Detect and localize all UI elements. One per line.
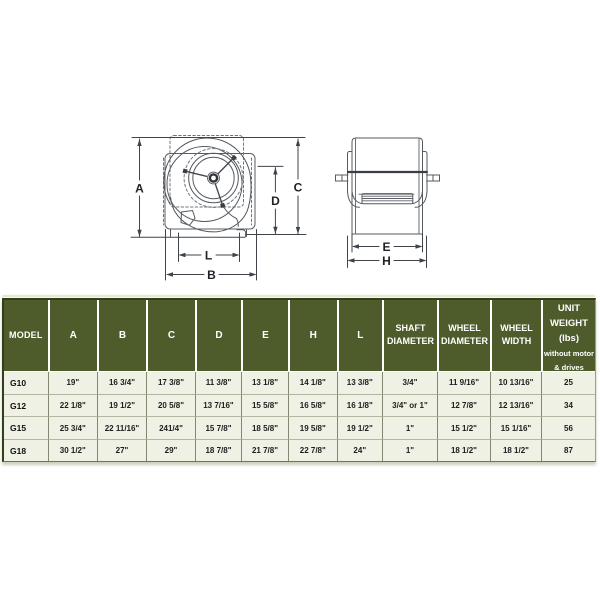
svg-text:A: A — [135, 182, 144, 196]
svg-text:C: C — [294, 181, 303, 195]
svg-text:E: E — [382, 240, 390, 254]
svg-text:B: B — [207, 268, 216, 282]
svg-text:D: D — [271, 194, 280, 208]
svg-text:L: L — [205, 249, 212, 263]
svg-text:H: H — [382, 254, 391, 268]
